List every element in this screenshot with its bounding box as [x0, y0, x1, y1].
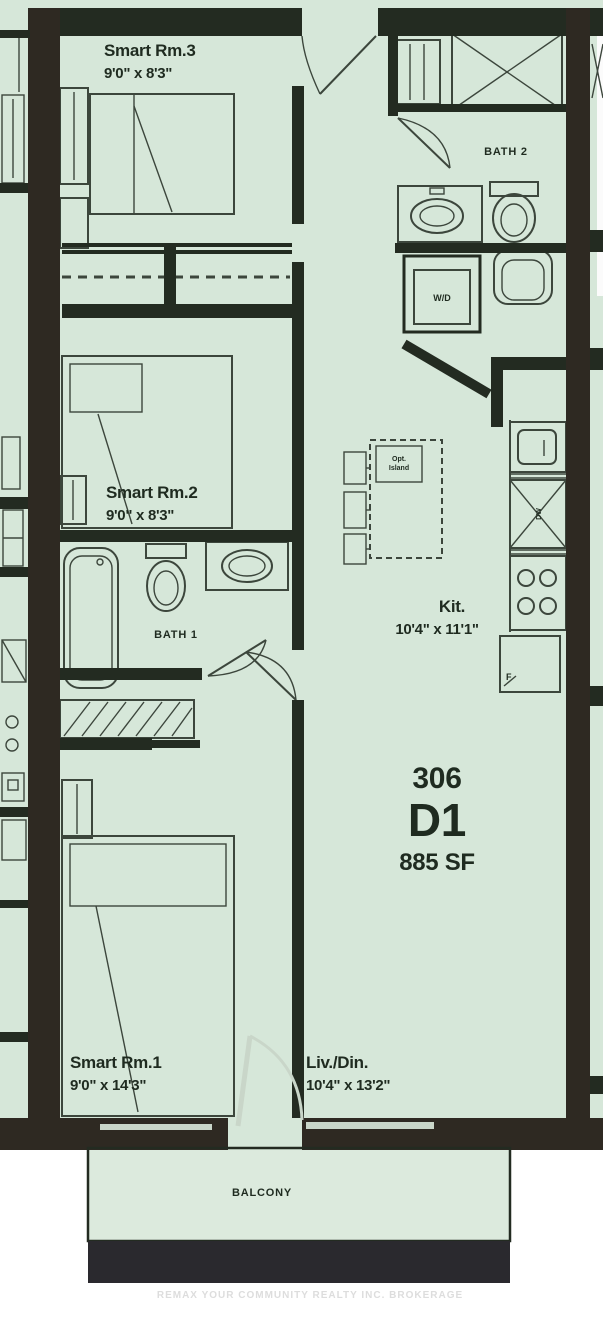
- window-bedroom1: [100, 1124, 212, 1130]
- dims-living-dining: 10'4" x 13'2": [306, 1077, 390, 1094]
- label-bedroom3: Smart Rm.3: [104, 41, 195, 60]
- watermark-text: REMAX YOUR COMMUNITY REALTY INC. BROKERA…: [157, 1290, 463, 1301]
- dims-bedroom2: 9'0" x 8'3": [106, 507, 174, 524]
- label-bath2: BATH 2: [484, 146, 528, 158]
- island-note-line1: Opt.: [392, 456, 406, 463]
- balcony-edge-band: [88, 1241, 510, 1283]
- island-note-line2: Island: [389, 465, 409, 472]
- floorplan-drawing: Smart Rm.3 9'0" x 8'3" BATH 2 W/D Smart …: [0, 0, 603, 1342]
- unit-area: 885 SF: [399, 849, 475, 876]
- label-fridge: F: [506, 672, 512, 682]
- label-bedroom2: Smart Rm.2: [106, 483, 197, 502]
- unit-model: D1: [408, 794, 466, 846]
- label-washer-dryer: W/D: [433, 293, 451, 303]
- dims-bedroom1: 9'0" x 14'3": [70, 1077, 146, 1094]
- unit-number: 306: [412, 762, 461, 795]
- label-kitchen: Kit.: [439, 597, 465, 616]
- label-balcony: BALCONY: [232, 1187, 292, 1199]
- dims-kitchen: 10'4" x 11'1": [395, 621, 479, 638]
- window-living: [306, 1122, 434, 1129]
- label-dishwasher: DW: [536, 508, 543, 520]
- label-bath1: BATH 1: [154, 629, 198, 641]
- dims-bedroom3: 9'0" x 8'3": [104, 65, 172, 82]
- label-bedroom1: Smart Rm.1: [70, 1053, 161, 1072]
- floorplan-page: Smart Rm.3 9'0" x 8'3" BATH 2 W/D Smart …: [0, 0, 603, 1342]
- label-living-dining: Liv./Din.: [306, 1053, 368, 1072]
- balcony-floor: [88, 1148, 510, 1243]
